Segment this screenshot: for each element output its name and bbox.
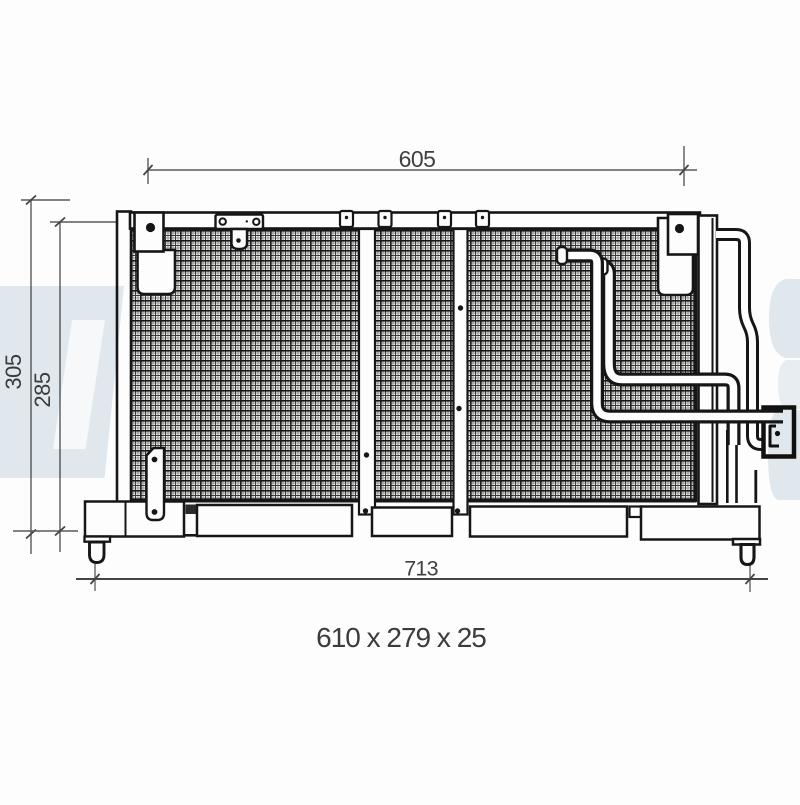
svg-text:713: 713 bbox=[404, 557, 438, 581]
svg-text:610 x 279 x 25: 610 x 279 x 25 bbox=[316, 622, 486, 653]
svg-text:605: 605 bbox=[399, 146, 436, 172]
